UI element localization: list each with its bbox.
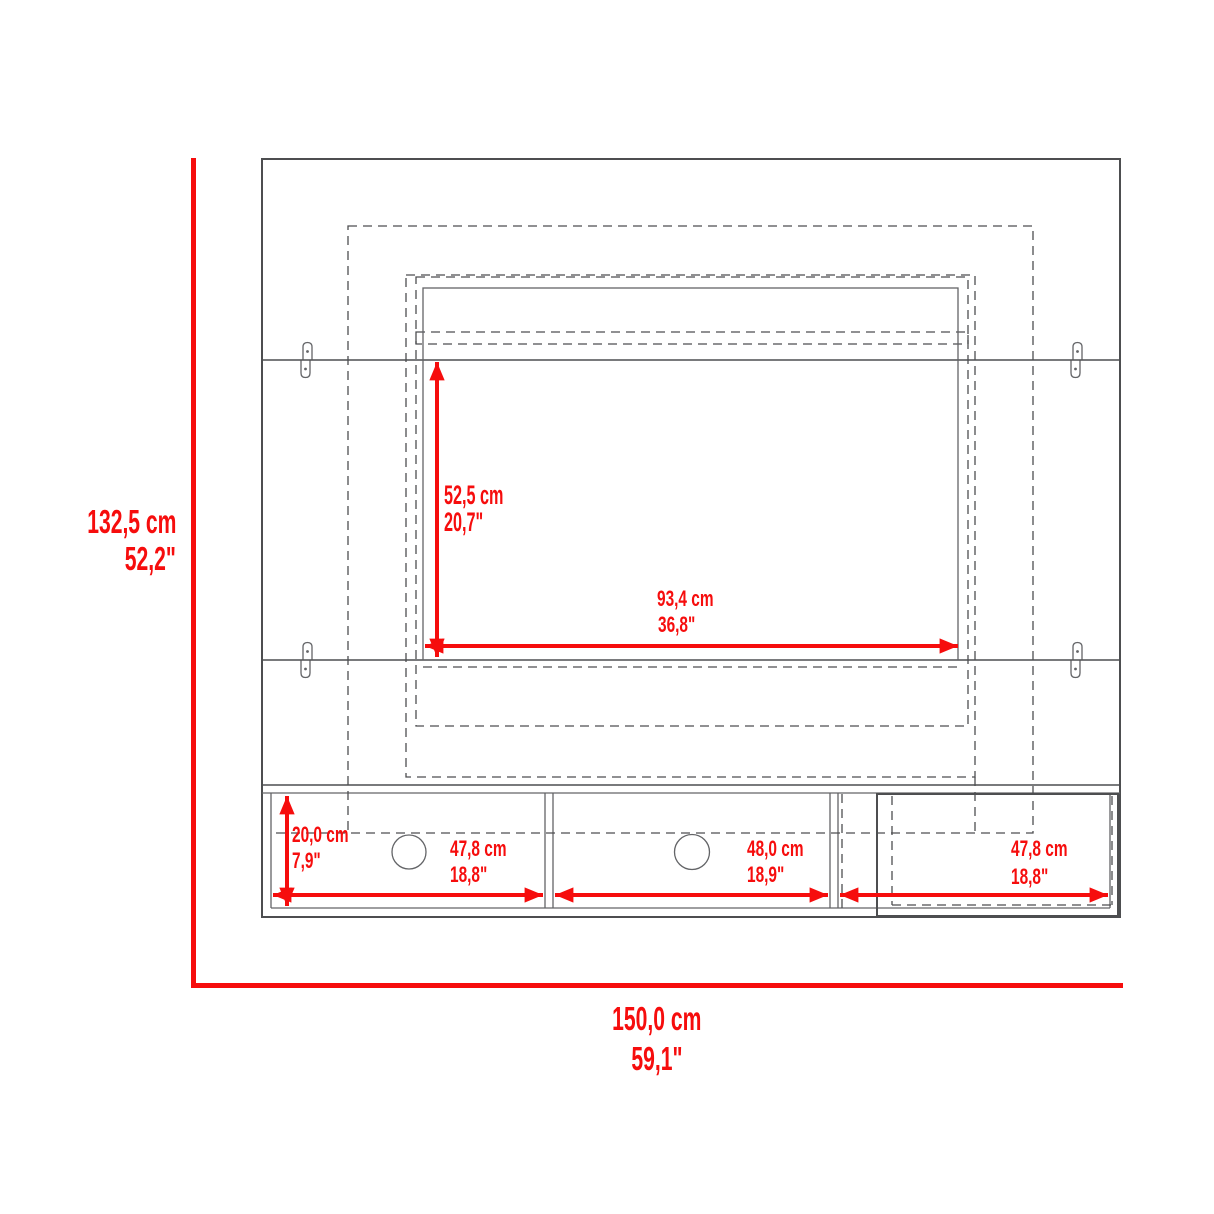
tv-height-cm-label: 52,5 cm — [444, 482, 543, 509]
overall-width-cm-label: 150,0 cm — [547, 1002, 767, 1035]
right-compartment-cm-label: 47,8 cm — [1011, 838, 1092, 860]
middle-compartment-cm-label: 48,0 cm — [747, 838, 828, 860]
tv-panel-dimension-diagram: 132,5 cm 52,2" 150,0 cm 59,1" 52,5 cm 20… — [0, 0, 1214, 1214]
overall-width-in-label: 59,1" — [547, 1042, 767, 1075]
console-shelf — [271, 793, 1110, 908]
shelf-height-in-label: 7,9" — [292, 850, 333, 872]
overall-height-in-label: 52,2" — [96, 542, 176, 575]
middle-compartment-in-label: 18,9" — [747, 864, 800, 886]
tv-width-in-label: 36,8" — [658, 614, 711, 636]
tv-height-in-label: 20,7" — [444, 509, 509, 536]
panel-outline — [262, 159, 1120, 917]
right-compartment-in-label: 18,8" — [1011, 866, 1064, 888]
cable-hole-middle — [675, 835, 710, 870]
left-compartment-in-label: 18,8" — [450, 864, 503, 886]
cable-hole-left — [392, 835, 426, 869]
left-compartment-cm-label: 47,8 cm — [450, 838, 531, 860]
overall-height-cm-label: 132,5 cm — [37, 505, 176, 538]
shelf-height-cm-label: 20,0 cm — [292, 824, 373, 846]
tv-width-cm-label: 93,4 cm — [657, 588, 738, 610]
